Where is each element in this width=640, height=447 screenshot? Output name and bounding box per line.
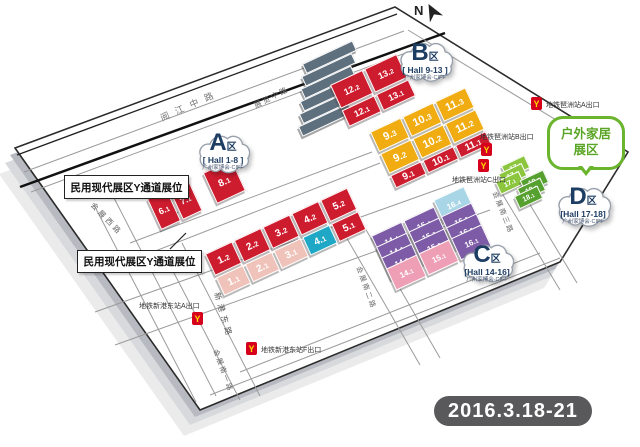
date-text: 2016.3.18-21: [448, 400, 578, 423]
zone-letter: D: [569, 183, 586, 210]
metro-icon: Y: [481, 143, 492, 156]
metro-exit-label: 地铁琶洲站A出口: [546, 100, 600, 110]
metro-exit-label: 地铁琶洲站B出口: [480, 132, 534, 142]
bubble-line2: 展区: [573, 143, 598, 159]
zone-qu: 区: [227, 142, 237, 153]
zone-letter: C: [473, 241, 490, 268]
zone-subtitle: 广州家博会·CIFF: [460, 277, 514, 284]
metro-exit-label: 地铁新港东站F出口: [261, 345, 321, 355]
zone-subtitle: 广州家博会·CIFF: [196, 165, 250, 172]
zone-subtitle: 广州家博会·CIFF: [397, 75, 453, 82]
zone-badge-b: B区 [ Hall 9-13 ] 广州家博会·CIFF: [397, 36, 453, 90]
metro-icon: Y: [246, 342, 257, 355]
metro-icon: Y: [478, 159, 489, 172]
date-badge: 2016.3.18-21: [434, 396, 592, 426]
note-box-corridor-top: 民用现代展区Y通道展位: [64, 175, 189, 199]
zone-subtitle: 广州家博会·CIFF: [555, 219, 611, 226]
zone-qu: 区: [491, 254, 501, 265]
metro-exit-label: 地铁琶洲站C出口: [452, 175, 506, 185]
metro-icon: Y: [531, 97, 542, 110]
zone-letter: A: [209, 129, 226, 156]
compass: N: [414, 3, 440, 20]
metro-icon: Y: [192, 312, 203, 325]
zone-halls-range: [Hall 17-18]: [555, 209, 611, 219]
north-arrow-icon: [422, 0, 443, 22]
zone-qu: 区: [429, 52, 439, 63]
note-text: 民用现代展区Y通道展位: [83, 254, 195, 269]
note-box-corridor-bottom: 民用现代展区Y通道展位: [77, 250, 202, 273]
zone-letter: B: [411, 39, 428, 66]
bubble-line1: 户外家居: [561, 127, 611, 143]
zone-badge-d: D区 [Hall 17-18] 广州家博会·CIFF: [555, 180, 611, 236]
exhibition-map: 阅江中路 展览中路 会展西路 新港东路 会展南一路 会展南二路 会展南三路 6.…: [0, 0, 640, 447]
zone-qu: 区: [587, 196, 597, 207]
zone-halls-range: [ Hall 9-13 ]: [397, 65, 453, 75]
metro-exit-label: 地铁新港东站A出口: [139, 301, 200, 311]
compass-n-label: N: [414, 3, 423, 18]
zone-halls-range: [Hall 14-16]: [460, 267, 514, 277]
note-text: 民用现代展区Y通道展位: [70, 180, 182, 195]
zone-halls-range: [ Hall 1-8 ]: [196, 155, 250, 165]
zone-badge-a: A区 [ Hall 1-8 ] 广州家博会·CIFF: [196, 126, 250, 184]
outdoor-home-bubble: 户外家居 展区: [547, 116, 625, 170]
zone-badge-c: C区 [Hall 14-16] 广州家博会·CIFF: [460, 238, 514, 290]
